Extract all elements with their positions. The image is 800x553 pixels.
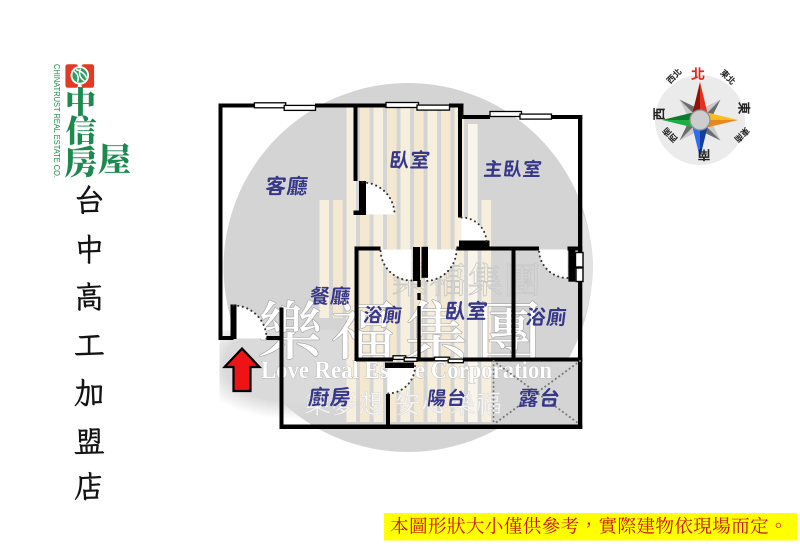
svg-text:CHINATRUST REAL ESTATE CO.: CHINATRUST REAL ESTATE CO. [52, 64, 61, 178]
